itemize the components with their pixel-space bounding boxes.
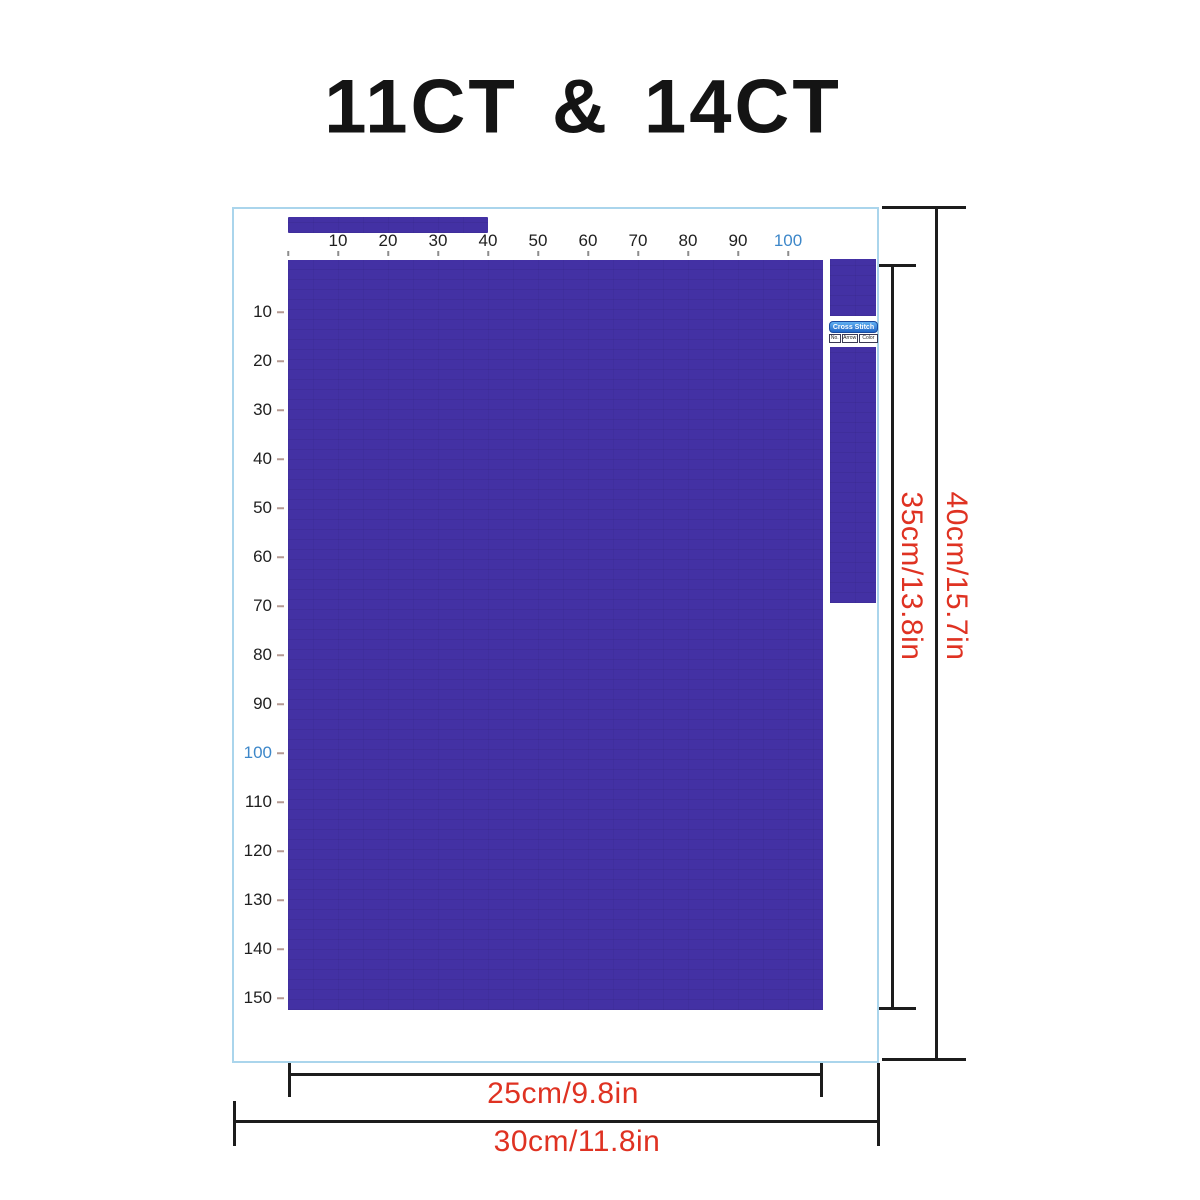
color-key-strip-top [830, 259, 876, 316]
dim-tick-right [820, 1063, 823, 1097]
dim-line [289, 1073, 822, 1076]
legend-col-arrow: Arrow [842, 334, 858, 343]
stitch-area [288, 260, 823, 1010]
dim-label-outer-width: 30cm/11.8in [494, 1125, 661, 1159]
dim-line [234, 1120, 879, 1123]
dim-tick-bottom [879, 1007, 916, 1010]
chart-top-bar [288, 217, 488, 233]
legend-col-no: No. [829, 334, 841, 343]
dim-label-inner-height: 35cm/13.8in [894, 492, 928, 661]
page-title: 11CT & 14CT [324, 64, 842, 151]
legend-columns: No. Arrow Color [829, 334, 878, 343]
color-key-legend: Cross Stitch No. Arrow Color [829, 321, 878, 343]
dim-label-inner-width: 25cm/9.8in [487, 1077, 639, 1111]
dim-label-outer-height: 40cm/15.7in [939, 492, 973, 661]
dim-tick-top [882, 206, 966, 209]
dim-tick-left [288, 1063, 291, 1097]
product-size-diagram: 11CT & 14CT 102030405060708090100 102030… [0, 0, 1200, 1200]
dim-line [935, 208, 938, 1059]
legend-col-color: Color [859, 334, 878, 343]
legend-header: Cross Stitch [829, 321, 878, 333]
dim-tick-bottom [882, 1058, 966, 1061]
dim-tick-right [877, 1063, 880, 1146]
dim-tick-left [233, 1101, 236, 1146]
dim-tick-top [879, 264, 916, 267]
color-key-strip-bottom [830, 347, 876, 603]
